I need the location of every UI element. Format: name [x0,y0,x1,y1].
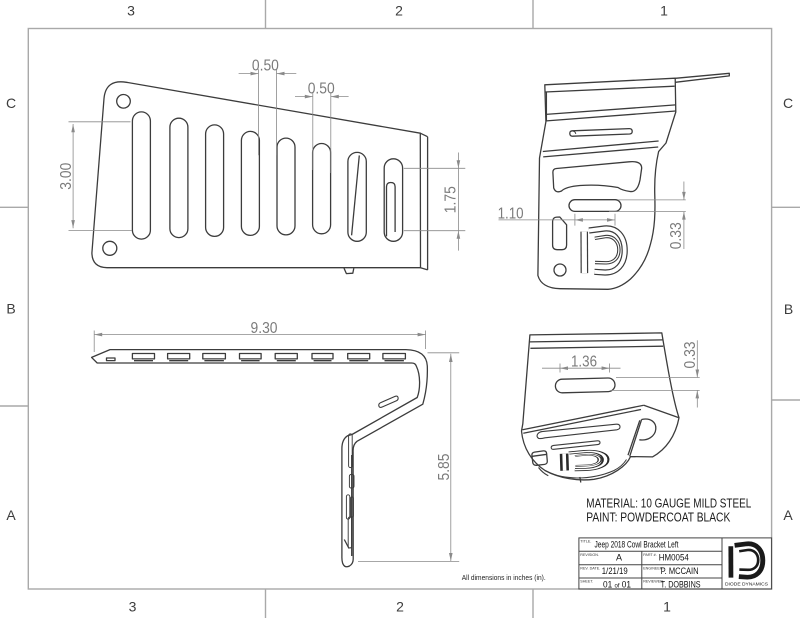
svg-text:A: A [783,507,793,523]
svg-text:T. DOBBINS: T. DOBBINS [661,580,701,590]
svg-text:C: C [783,95,793,111]
svg-text:1.36: 1.36 [571,354,597,371]
svg-text:REVISION.: REVISION. [580,553,599,557]
svg-text:TITLE.: TITLE. [580,540,591,544]
svg-text:1.75: 1.75 [442,186,459,213]
svg-text:1.10: 1.10 [498,205,524,222]
svg-text:PAINT: POWDERCOAT BLACK: PAINT: POWDERCOAT BLACK [586,510,731,524]
svg-text:1/21/19: 1/21/19 [602,566,628,576]
svg-text:2: 2 [396,599,404,615]
svg-text:0.50: 0.50 [308,81,335,98]
svg-text:REV. DATE.: REV. DATE. [580,566,600,570]
svg-text:A: A [616,553,622,563]
svg-text:1: 1 [663,599,671,615]
svg-text:5.85: 5.85 [436,453,453,480]
svg-text:P. MCCAIN: P. MCCAIN [661,566,699,576]
svg-text:3: 3 [129,599,137,615]
svg-text:0.33: 0.33 [682,341,699,368]
svg-text:B: B [784,301,793,317]
svg-text:Jeep 2018 Cowl Bracket Left: Jeep 2018 Cowl Bracket Left [595,539,679,549]
svg-text:HM0054: HM0054 [659,553,689,563]
svg-text:MATERIAL: 10 GAUGE MILD STEEL: MATERIAL: 10 GAUGE MILD STEEL [586,497,751,511]
svg-text:C: C [6,95,16,111]
svg-text:SHEET.: SHEET. [580,580,593,584]
svg-text:PART #.: PART #. [643,553,657,557]
svg-text:B: B [6,301,15,317]
svg-text:3: 3 [127,3,135,19]
svg-text:0.33: 0.33 [668,222,685,249]
svg-text:All dimensions in inches (in).: All dimensions in inches (in). [462,575,546,582]
svg-text:3.00: 3.00 [58,163,75,190]
svg-text:0.50: 0.50 [252,58,279,75]
svg-text:2: 2 [395,3,403,19]
svg-text:1: 1 [660,3,668,19]
svg-text:9.30: 9.30 [251,320,278,337]
svg-text:A: A [6,507,16,523]
svg-text:DIODE DYNAMICS: DIODE DYNAMICS [725,581,768,586]
